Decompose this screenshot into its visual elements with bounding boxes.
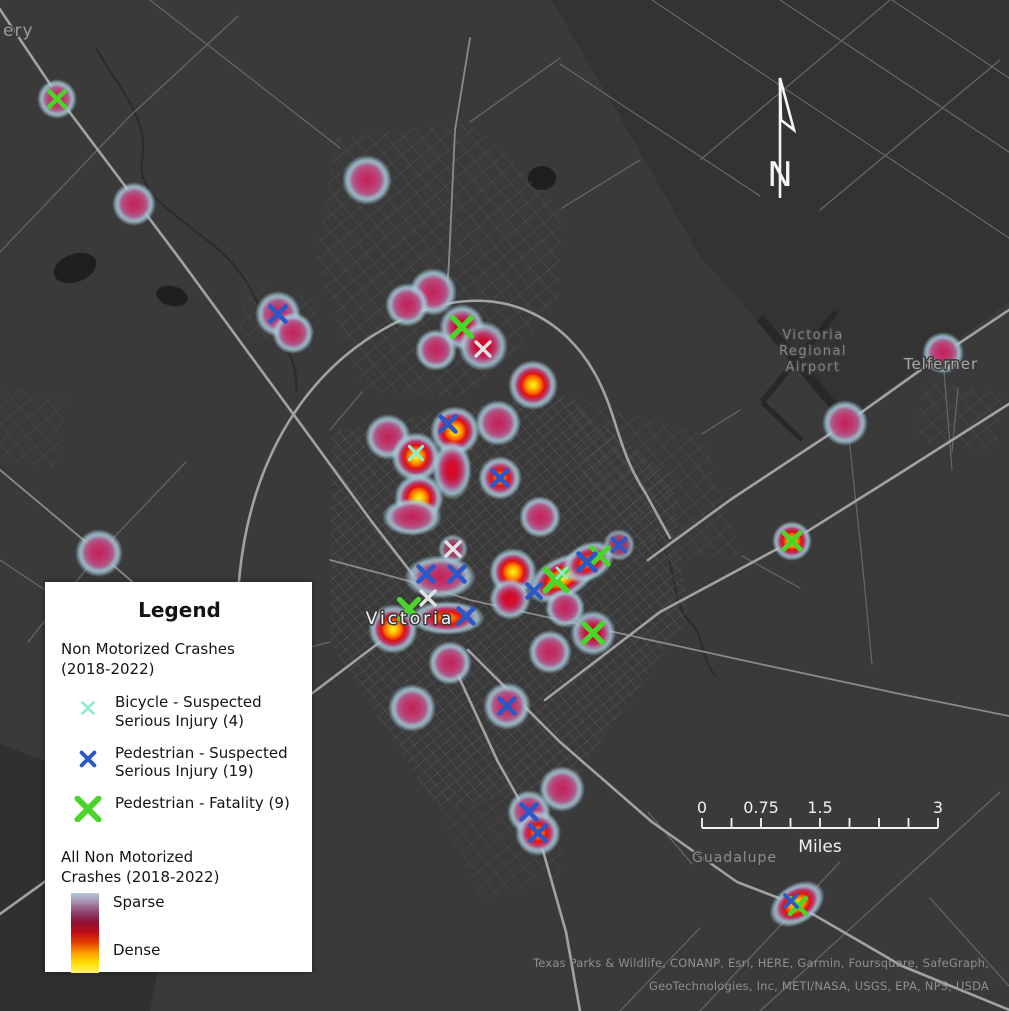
scalebar-label: 0.75 xyxy=(743,798,779,817)
pedestrian-x-icon xyxy=(73,746,103,772)
legend-item-fatality: Pedestrian - Fatality (9) xyxy=(73,794,298,822)
heat-blob xyxy=(508,360,558,410)
place-label: ery xyxy=(3,21,34,41)
legend-panel: Legend Non Motorized Crashes (2018-2022)… xyxy=(45,582,312,972)
place-label: Telferner xyxy=(903,355,978,373)
legend-title: Legend xyxy=(61,598,298,622)
heat-blob xyxy=(388,684,436,732)
scalebar-label: 3 xyxy=(933,798,943,817)
place-label: Victoria xyxy=(366,609,455,629)
heat-gradient-swatch xyxy=(71,893,99,973)
gradient-sparse-label: Sparse xyxy=(113,893,164,911)
heat-blob xyxy=(519,496,561,538)
scalebar-unit: Miles xyxy=(798,837,842,857)
heat-blob xyxy=(475,400,521,446)
heat-blob xyxy=(75,529,123,577)
fatality-x-icon xyxy=(73,796,103,822)
legend-section2-title: All Non Motorized Crashes (2018-2022) xyxy=(61,848,298,887)
heat-blob xyxy=(112,182,156,226)
heat-blob xyxy=(382,498,442,536)
scale-bar: 00.751.53Miles xyxy=(697,798,943,857)
map-stage: eryVictoriaVictoriaRegionalAirportTelfer… xyxy=(0,0,1009,1011)
legend-item-bicycle: Bicycle - Suspected Serious Injury (4) xyxy=(73,693,298,731)
place-label: Guadalupe xyxy=(692,850,777,866)
legend-items: Bicycle - Suspected Serious Injury (4)Pe… xyxy=(61,693,298,822)
attribution-line: GeoTechnologies, Inc, METI/NASA, USGS, E… xyxy=(533,975,989,997)
scalebar-label: 0 xyxy=(697,798,707,817)
north-arrow-label: N xyxy=(767,155,792,195)
attribution-line: Texas Parks & Wildlife, CONANP, Esri, HE… xyxy=(533,952,989,974)
place-label: Airport xyxy=(786,360,841,375)
heat-blob xyxy=(342,155,392,205)
legend-item-label: Pedestrian - Fatality (9) xyxy=(115,794,298,813)
heat-blob xyxy=(404,555,476,599)
bicycle-x-icon xyxy=(73,695,103,721)
heat-blob xyxy=(822,400,868,446)
heat-blob xyxy=(489,578,531,620)
place-label: Regional xyxy=(779,344,847,359)
gradient-dense-label: Dense xyxy=(113,941,160,959)
map-attribution: Texas Parks & Wildlife, CONANP, Esri, HE… xyxy=(533,952,989,997)
legend-item-label: Pedestrian - Suspected Serious Injury (1… xyxy=(115,744,298,782)
legend-section1-title: Non Motorized Crashes (2018-2022) xyxy=(61,640,298,679)
legend-item-pedestrian: Pedestrian - Suspected Serious Injury (1… xyxy=(73,744,298,782)
heat-blob xyxy=(428,641,472,685)
heat-blob xyxy=(385,283,429,327)
heat-blob xyxy=(528,630,572,674)
legend-gradient-row: Sparse Dense xyxy=(71,891,298,977)
scalebar-label: 1.5 xyxy=(807,798,832,817)
heat-blob xyxy=(272,312,314,354)
legend-item-label: Bicycle - Suspected Serious Injury (4) xyxy=(115,693,298,731)
place-label: Victoria xyxy=(782,328,843,343)
